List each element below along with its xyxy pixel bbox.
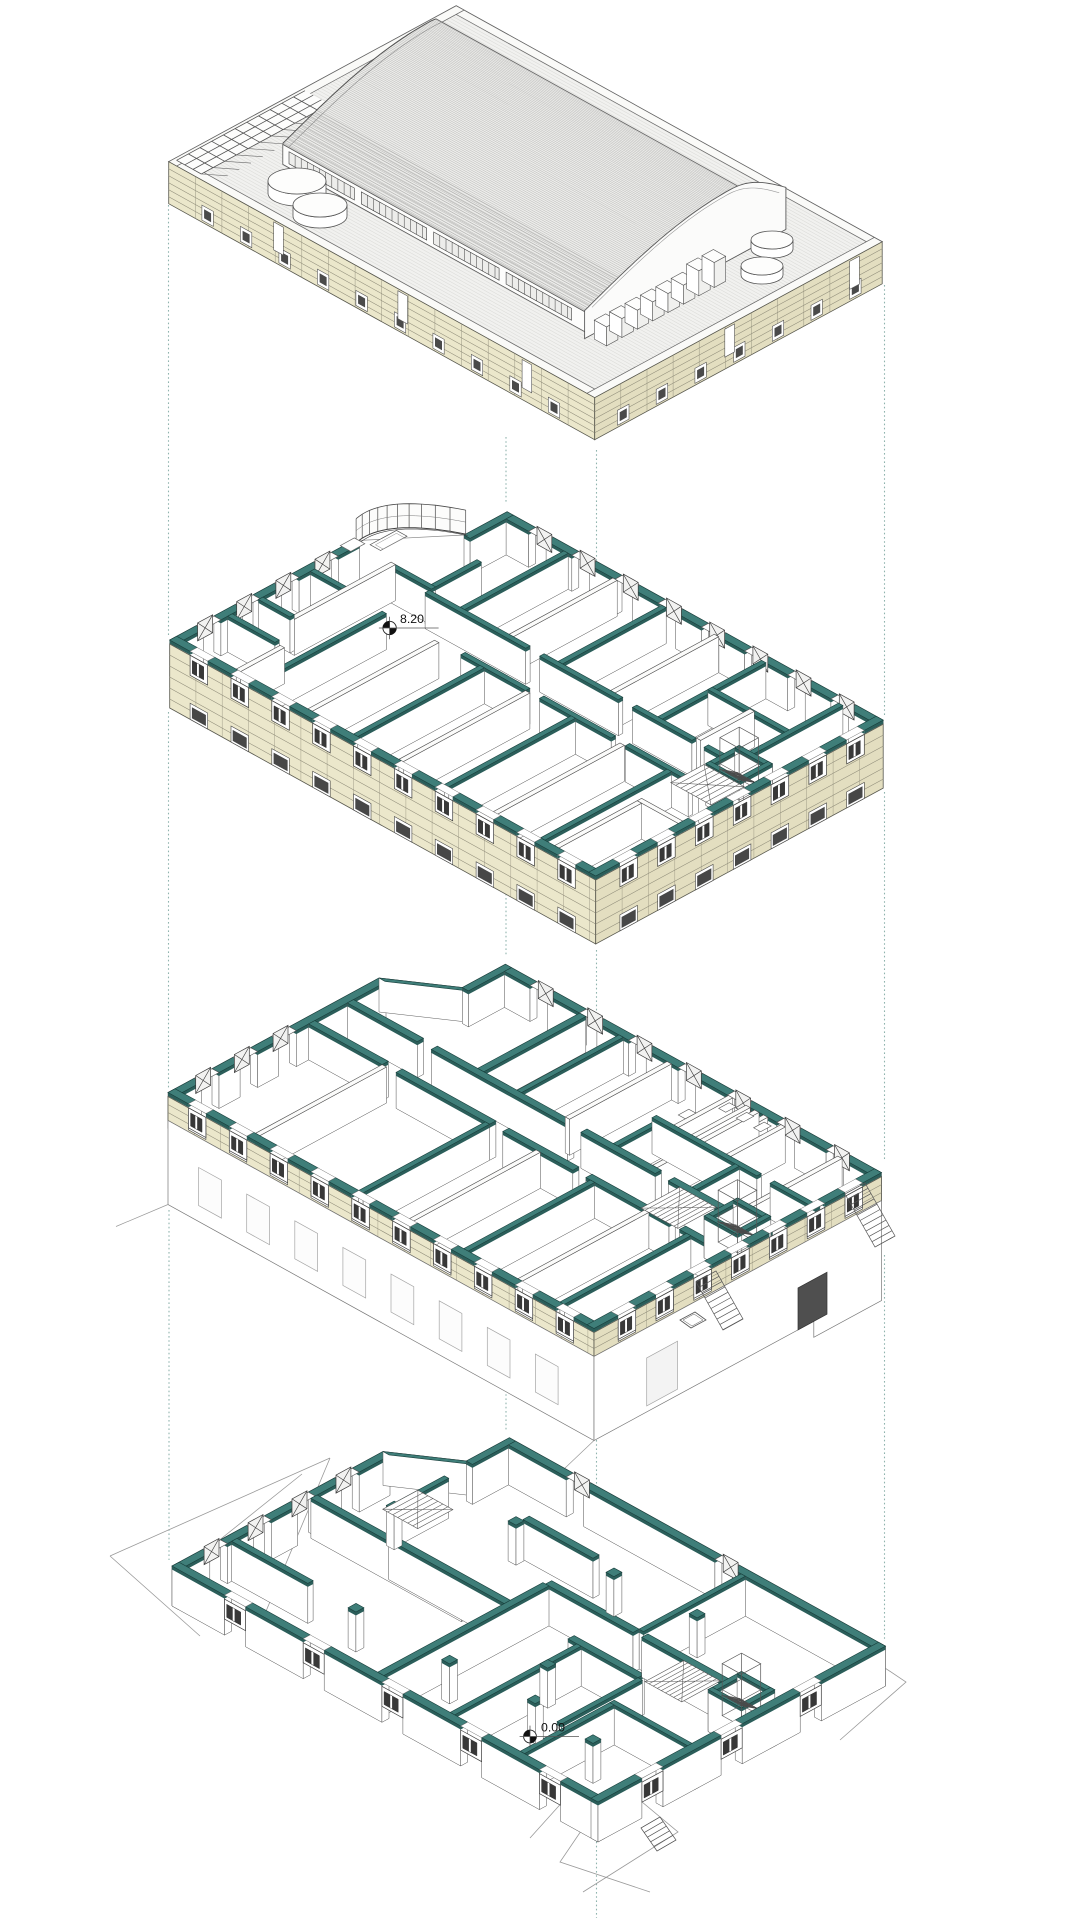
svg-text:8.20: 8.20 [400, 612, 424, 626]
svg-text:0.00: 0.00 [541, 1721, 565, 1735]
